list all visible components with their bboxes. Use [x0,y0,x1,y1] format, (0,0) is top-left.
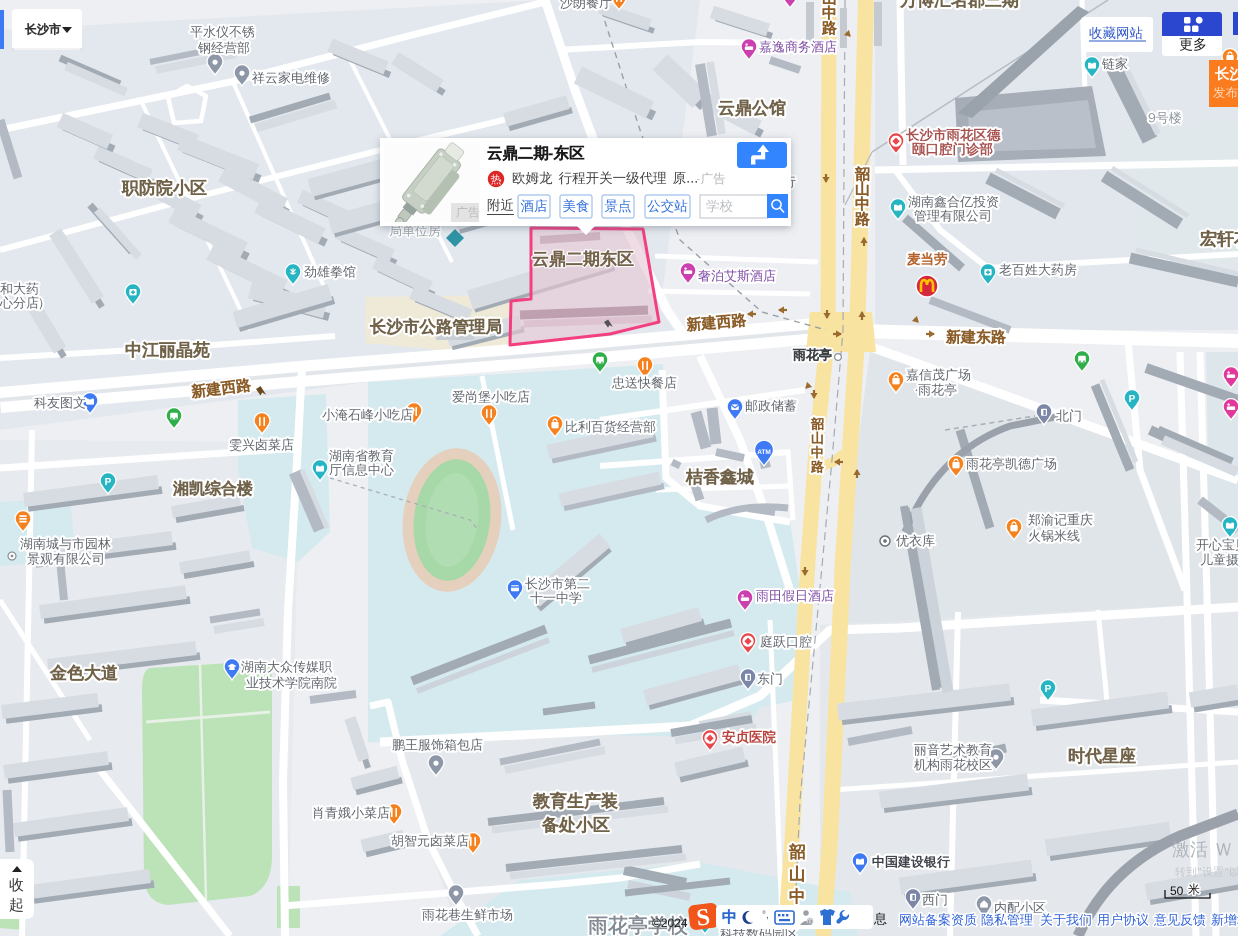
svg-text:13: 13 [807,920,813,925]
svg-text:P: P [1045,684,1052,695]
svg-text:50: 50 [1170,884,1184,898]
svg-text:ATM: ATM [757,449,771,456]
svg-text:©2024: ©2024 [652,916,688,930]
svg-text:P: P [1129,394,1136,405]
svg-text:P: P [105,477,112,488]
svg-text:°,: °, [762,910,769,921]
